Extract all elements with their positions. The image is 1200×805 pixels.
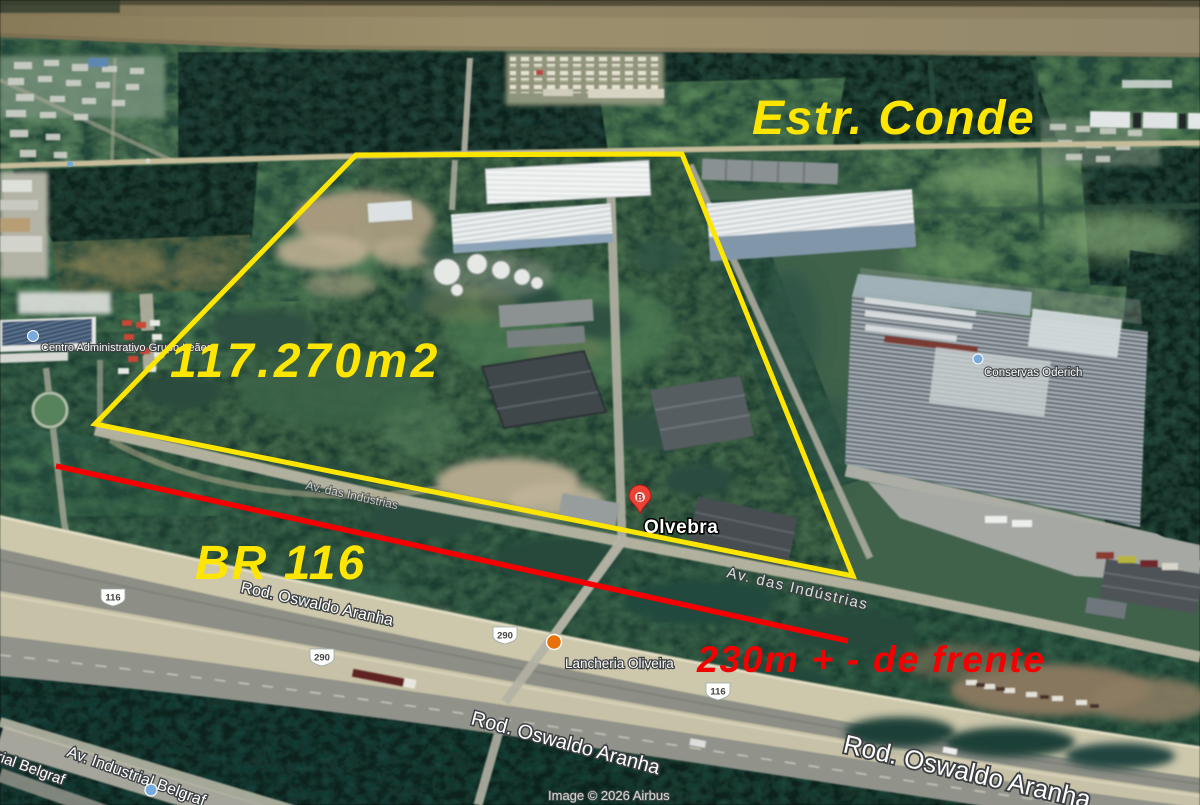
svg-text:290: 290 bbox=[314, 653, 330, 664]
svg-text:116: 116 bbox=[105, 593, 120, 604]
svg-text:Estr. Conde: Estr. Conde bbox=[752, 92, 1035, 145]
svg-text:B: B bbox=[637, 493, 644, 503]
svg-text:Image © 2026 Airbus: Image © 2026 Airbus bbox=[548, 788, 670, 803]
svg-text:290: 290 bbox=[497, 631, 513, 642]
svg-text:117.270m2: 117.270m2 bbox=[170, 335, 441, 388]
svg-text:Conservas Oderich: Conservas Oderich bbox=[984, 367, 1082, 379]
svg-text:230m + - de frente: 230m + - de frente bbox=[696, 638, 1046, 680]
svg-text:BR 116: BR 116 bbox=[195, 537, 366, 590]
svg-text:116: 116 bbox=[710, 687, 725, 698]
svg-text:Lancheria Oliveira: Lancheria Oliveira bbox=[565, 656, 674, 671]
